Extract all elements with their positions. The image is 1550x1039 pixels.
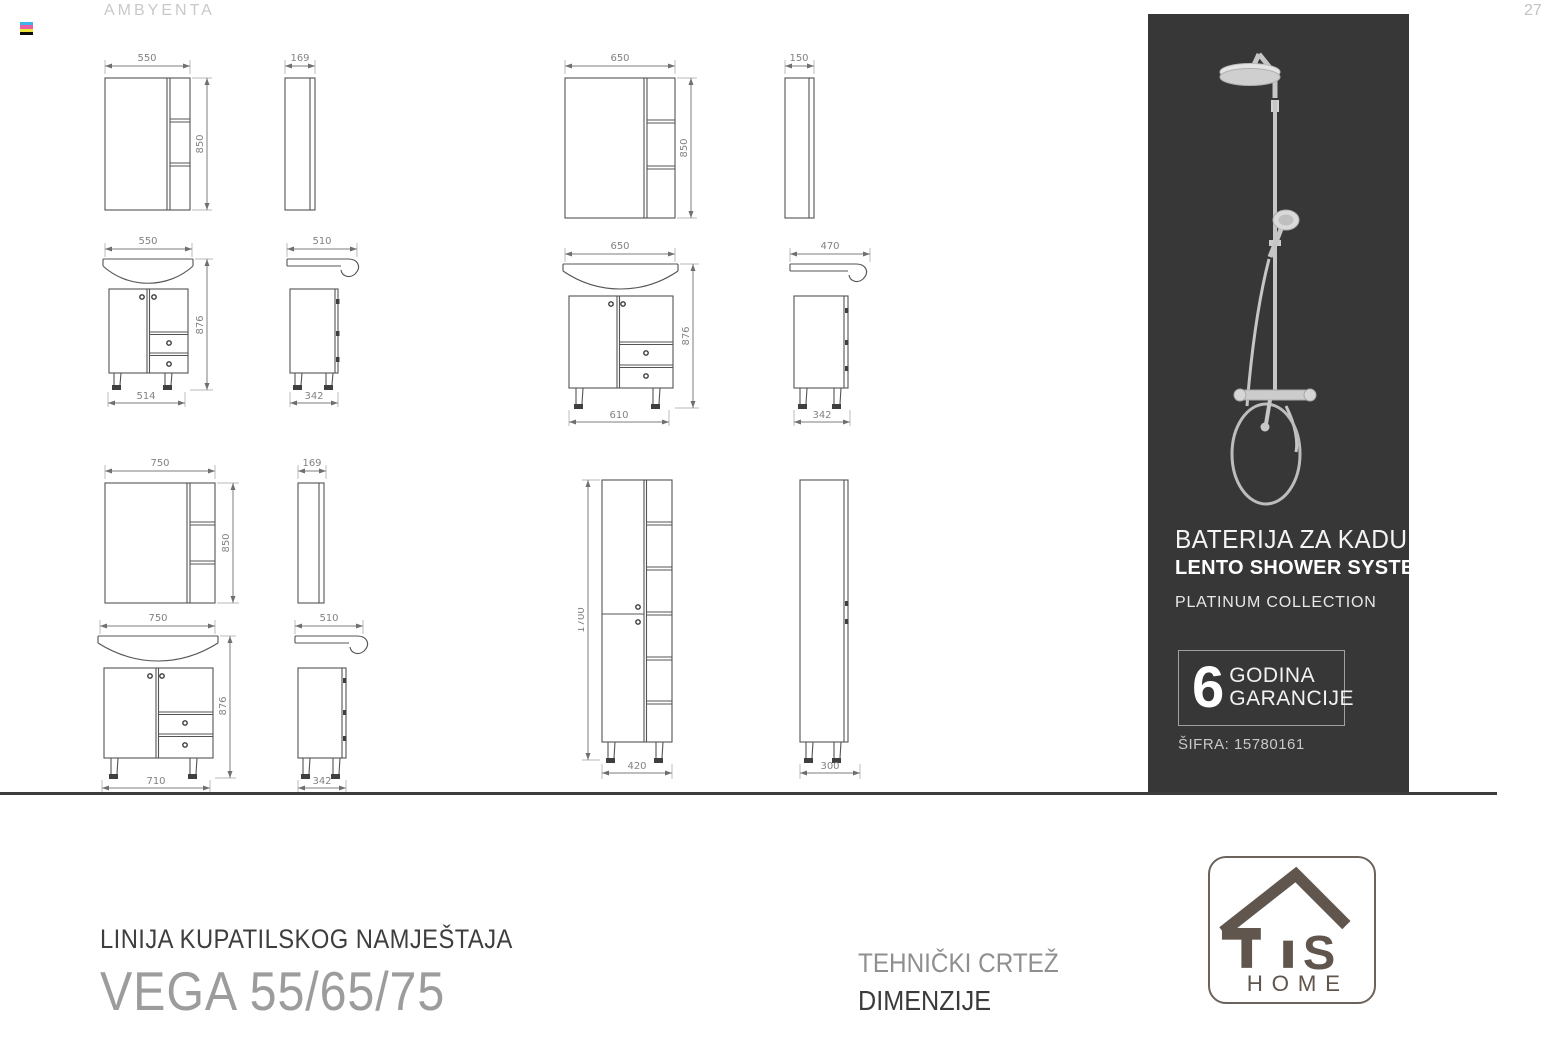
drawing-vanity-65-front: 650 876 610: [553, 238, 707, 436]
footer-series-block: LINIJA KUPATILSKOG NAMJEŠTAJA VEGA 55/65…: [100, 924, 569, 1023]
svg-text:510: 510: [312, 236, 331, 247]
series-label: LINIJA KUPATILSKOG NAMJEŠTAJA: [100, 924, 513, 955]
svg-text:1700: 1700: [578, 607, 587, 632]
svg-text:342: 342: [312, 776, 331, 787]
drawing-mirror-75-side: 169: [288, 453, 348, 627]
svg-text:514: 514: [136, 391, 155, 402]
svg-text:850: 850: [679, 138, 690, 157]
print-color-bar-icon: [20, 22, 33, 35]
drawing-tall-cabinet-side: 300: [788, 453, 872, 797]
svg-text:650: 650: [610, 53, 629, 64]
drawing-mirror-55-side: 169: [278, 46, 338, 226]
svg-text:750: 750: [148, 613, 167, 624]
product-name: VEGA 55/65/75: [100, 959, 513, 1023]
svg-text:342: 342: [304, 391, 323, 402]
svg-text:420: 420: [627, 761, 646, 772]
svg-text:300: 300: [820, 761, 839, 772]
warranty-years: 6: [1192, 662, 1224, 714]
svg-text:550: 550: [137, 53, 156, 64]
svg-text:650: 650: [610, 241, 629, 252]
fis-home-logo-graphic: S HOME: [1210, 858, 1370, 998]
warranty-text: GODINA GARANCIJE: [1229, 665, 1354, 710]
panel-subtitle: LENTO SHOWER SYSTEM: [1175, 557, 1431, 580]
promo-panel: BATERIJA ZA KADU LENTO SHOWER SYSTEM PLA…: [1148, 14, 1409, 792]
svg-text:342: 342: [812, 410, 831, 421]
separator-line: [0, 792, 1497, 795]
warranty-badge: 6 GODINA GARANCIJE: [1178, 650, 1345, 726]
drawing-tall-cabinet-front: 1700 420: [578, 453, 706, 797]
drawing-vanity-55-side: 510 342: [278, 233, 374, 415]
drawing-vanity-75-side: 510 342: [283, 610, 381, 798]
logo-home: HOME: [1247, 971, 1349, 996]
drawing-mirror-55-front: 550 850: [93, 46, 221, 226]
svg-text:510: 510: [319, 613, 338, 624]
svg-text:710: 710: [146, 776, 165, 787]
shower-system-image: [1148, 14, 1409, 519]
fis-home-logo: S HOME: [1208, 856, 1376, 1004]
footer-center-block: TEHNIČKI CRTEŽ DIMENZIJE: [858, 948, 1081, 1017]
svg-text:750: 750: [150, 458, 169, 469]
svg-text:150: 150: [789, 53, 808, 64]
svg-text:610: 610: [609, 410, 628, 421]
svg-text:169: 169: [302, 458, 321, 469]
drawing-mirror-65-front: 650 850: [558, 44, 710, 228]
drawing-mirror-65-side: 150: [773, 44, 837, 228]
svg-text:169: 169: [290, 53, 309, 64]
panel-title: BATERIJA ZA KADU: [1175, 524, 1408, 555]
drawing-vanity-55-front: 550 876 514: [93, 233, 221, 415]
svg-text:470: 470: [820, 241, 839, 252]
svg-text:850: 850: [221, 533, 232, 552]
svg-text:550: 550: [138, 236, 157, 247]
drawing-vanity-65-side: 470 342: [778, 238, 880, 436]
product-sku: ŠIFRA: 15780161: [1178, 736, 1305, 753]
svg-text:850: 850: [195, 134, 206, 153]
svg-text:876: 876: [681, 326, 692, 345]
drawing-mirror-75-front: 750 850: [93, 453, 247, 627]
brand-watermark: AMBYENTA: [104, 2, 215, 20]
drawing-vanity-75-front: 750 876 710: [88, 610, 246, 798]
technical-drawing-label: TEHNIČKI CRTEŽ: [858, 948, 1059, 979]
svg-text:876: 876: [218, 696, 229, 715]
svg-text:876: 876: [195, 315, 206, 334]
catalog-page: AMBYENTA 27 550 850 169 650 850 150: [0, 0, 1550, 1039]
page-number: 27: [1524, 2, 1542, 20]
panel-collection: PLATINUM COLLECTION: [1175, 594, 1377, 612]
dimensions-label: DIMENZIJE: [858, 985, 1059, 1017]
